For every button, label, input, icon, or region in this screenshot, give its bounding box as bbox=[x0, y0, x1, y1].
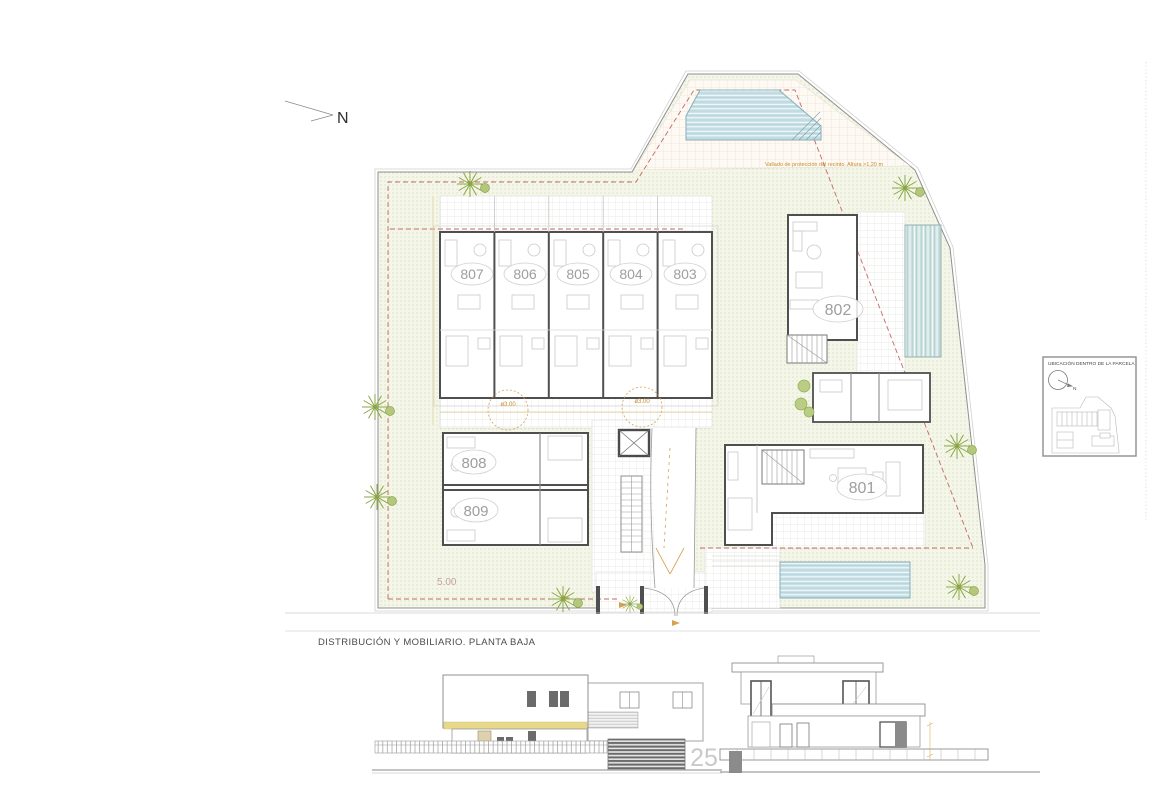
house-number: 25 bbox=[690, 744, 718, 772]
unit-label-806: 806 bbox=[513, 266, 537, 282]
facade-yellow-band bbox=[444, 722, 587, 729]
unit-label-807: 807 bbox=[460, 266, 484, 282]
plan-drawing: 807 806 805 804 803 802 801 808 809 Vall… bbox=[0, 0, 1170, 785]
unit-label-809: 809 bbox=[463, 503, 488, 520]
setback-dimension: 5.00 bbox=[437, 577, 457, 588]
unit-label-808: 808 bbox=[461, 455, 486, 472]
unit-label-801: 801 bbox=[849, 480, 876, 497]
unit-label-803: 803 bbox=[673, 266, 697, 282]
duplex-block bbox=[443, 433, 588, 545]
street-lines bbox=[285, 613, 1040, 631]
pool-villa-802 bbox=[905, 225, 941, 357]
tree-diameter-2: ø3.00 bbox=[634, 399, 650, 405]
legend-box: UBICACIÓN DENTRO DE LA PARCELA N bbox=[1043, 357, 1136, 456]
perimeter-wall bbox=[720, 749, 988, 760]
unit-label-802: 802 bbox=[825, 302, 852, 319]
unit-label-804: 804 bbox=[619, 266, 643, 282]
pool-villa-801 bbox=[780, 562, 910, 598]
north-label: N bbox=[337, 110, 349, 127]
elevation-left: 25 bbox=[372, 675, 722, 773]
tree-diameter-1: ø3.00 bbox=[500, 402, 516, 408]
floor-plan-sheet: 807 806 805 804 803 802 801 808 809 Vall… bbox=[0, 0, 1170, 785]
legend-north-label: N bbox=[1073, 386, 1077, 392]
front-fence bbox=[375, 741, 607, 753]
fence-note: Vallado de protección del recinto. Altur… bbox=[765, 162, 883, 168]
elevation-right bbox=[720, 656, 1040, 773]
legend-title: UBICACIÓN DENTRO DE LA PARCELA bbox=[1048, 360, 1135, 367]
unit-label-805: 805 bbox=[566, 266, 590, 282]
plan-title: DISTRIBUCIÓN Y MOBILIARIO. PLANTA BAJA bbox=[318, 637, 536, 648]
driveway-gate bbox=[608, 739, 685, 770]
north-arrow: N bbox=[285, 101, 349, 127]
